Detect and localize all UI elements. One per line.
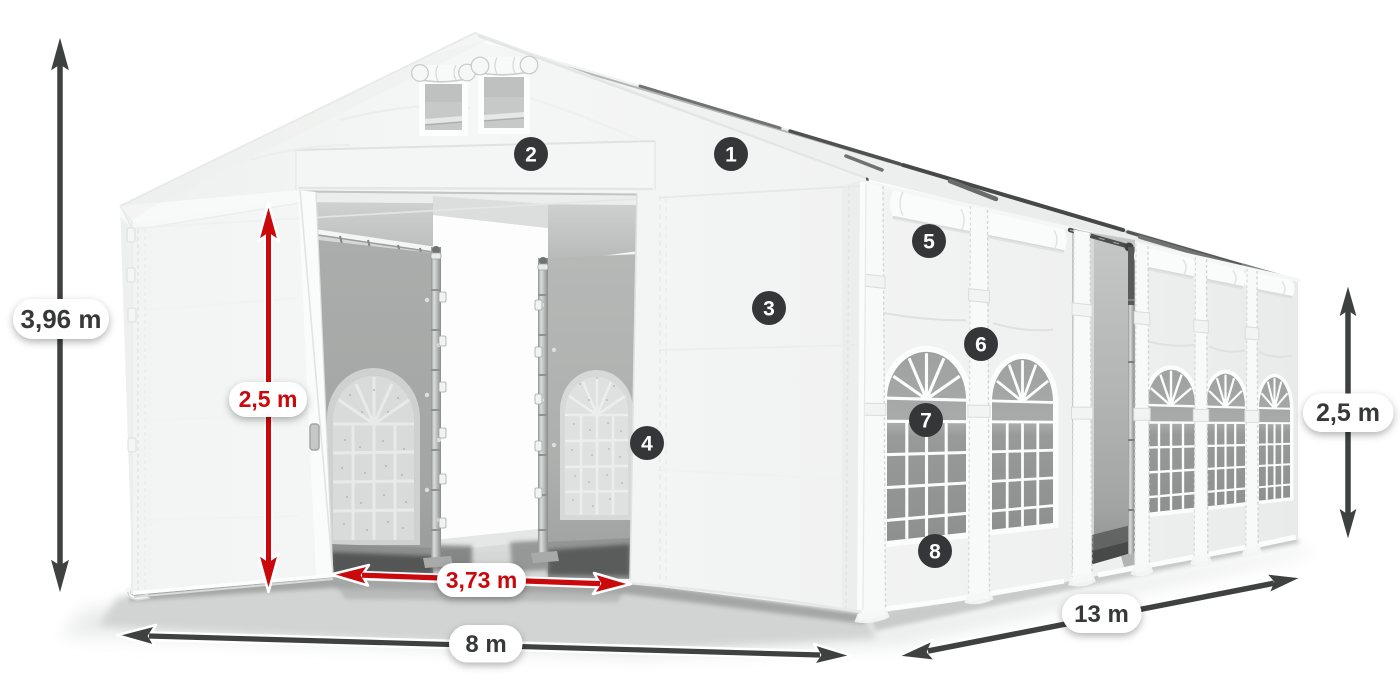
svg-text:1: 1 — [725, 144, 737, 167]
svg-text:3: 3 — [763, 298, 775, 321]
svg-text:3,73 m: 3,73 m — [446, 567, 518, 593]
svg-text:7: 7 — [920, 410, 932, 433]
svg-text:6: 6 — [975, 334, 987, 357]
svg-text:5: 5 — [923, 231, 935, 254]
svg-text:8 m: 8 m — [465, 631, 506, 658]
svg-text:4: 4 — [641, 433, 653, 456]
svg-text:2,5 m: 2,5 m — [239, 386, 298, 412]
svg-text:3,96 m: 3,96 m — [21, 304, 102, 334]
svg-text:2: 2 — [525, 144, 537, 167]
svg-text:2,5 m: 2,5 m — [1316, 399, 1380, 427]
svg-text:8: 8 — [929, 541, 941, 564]
svg-text:13 m: 13 m — [1074, 601, 1129, 628]
